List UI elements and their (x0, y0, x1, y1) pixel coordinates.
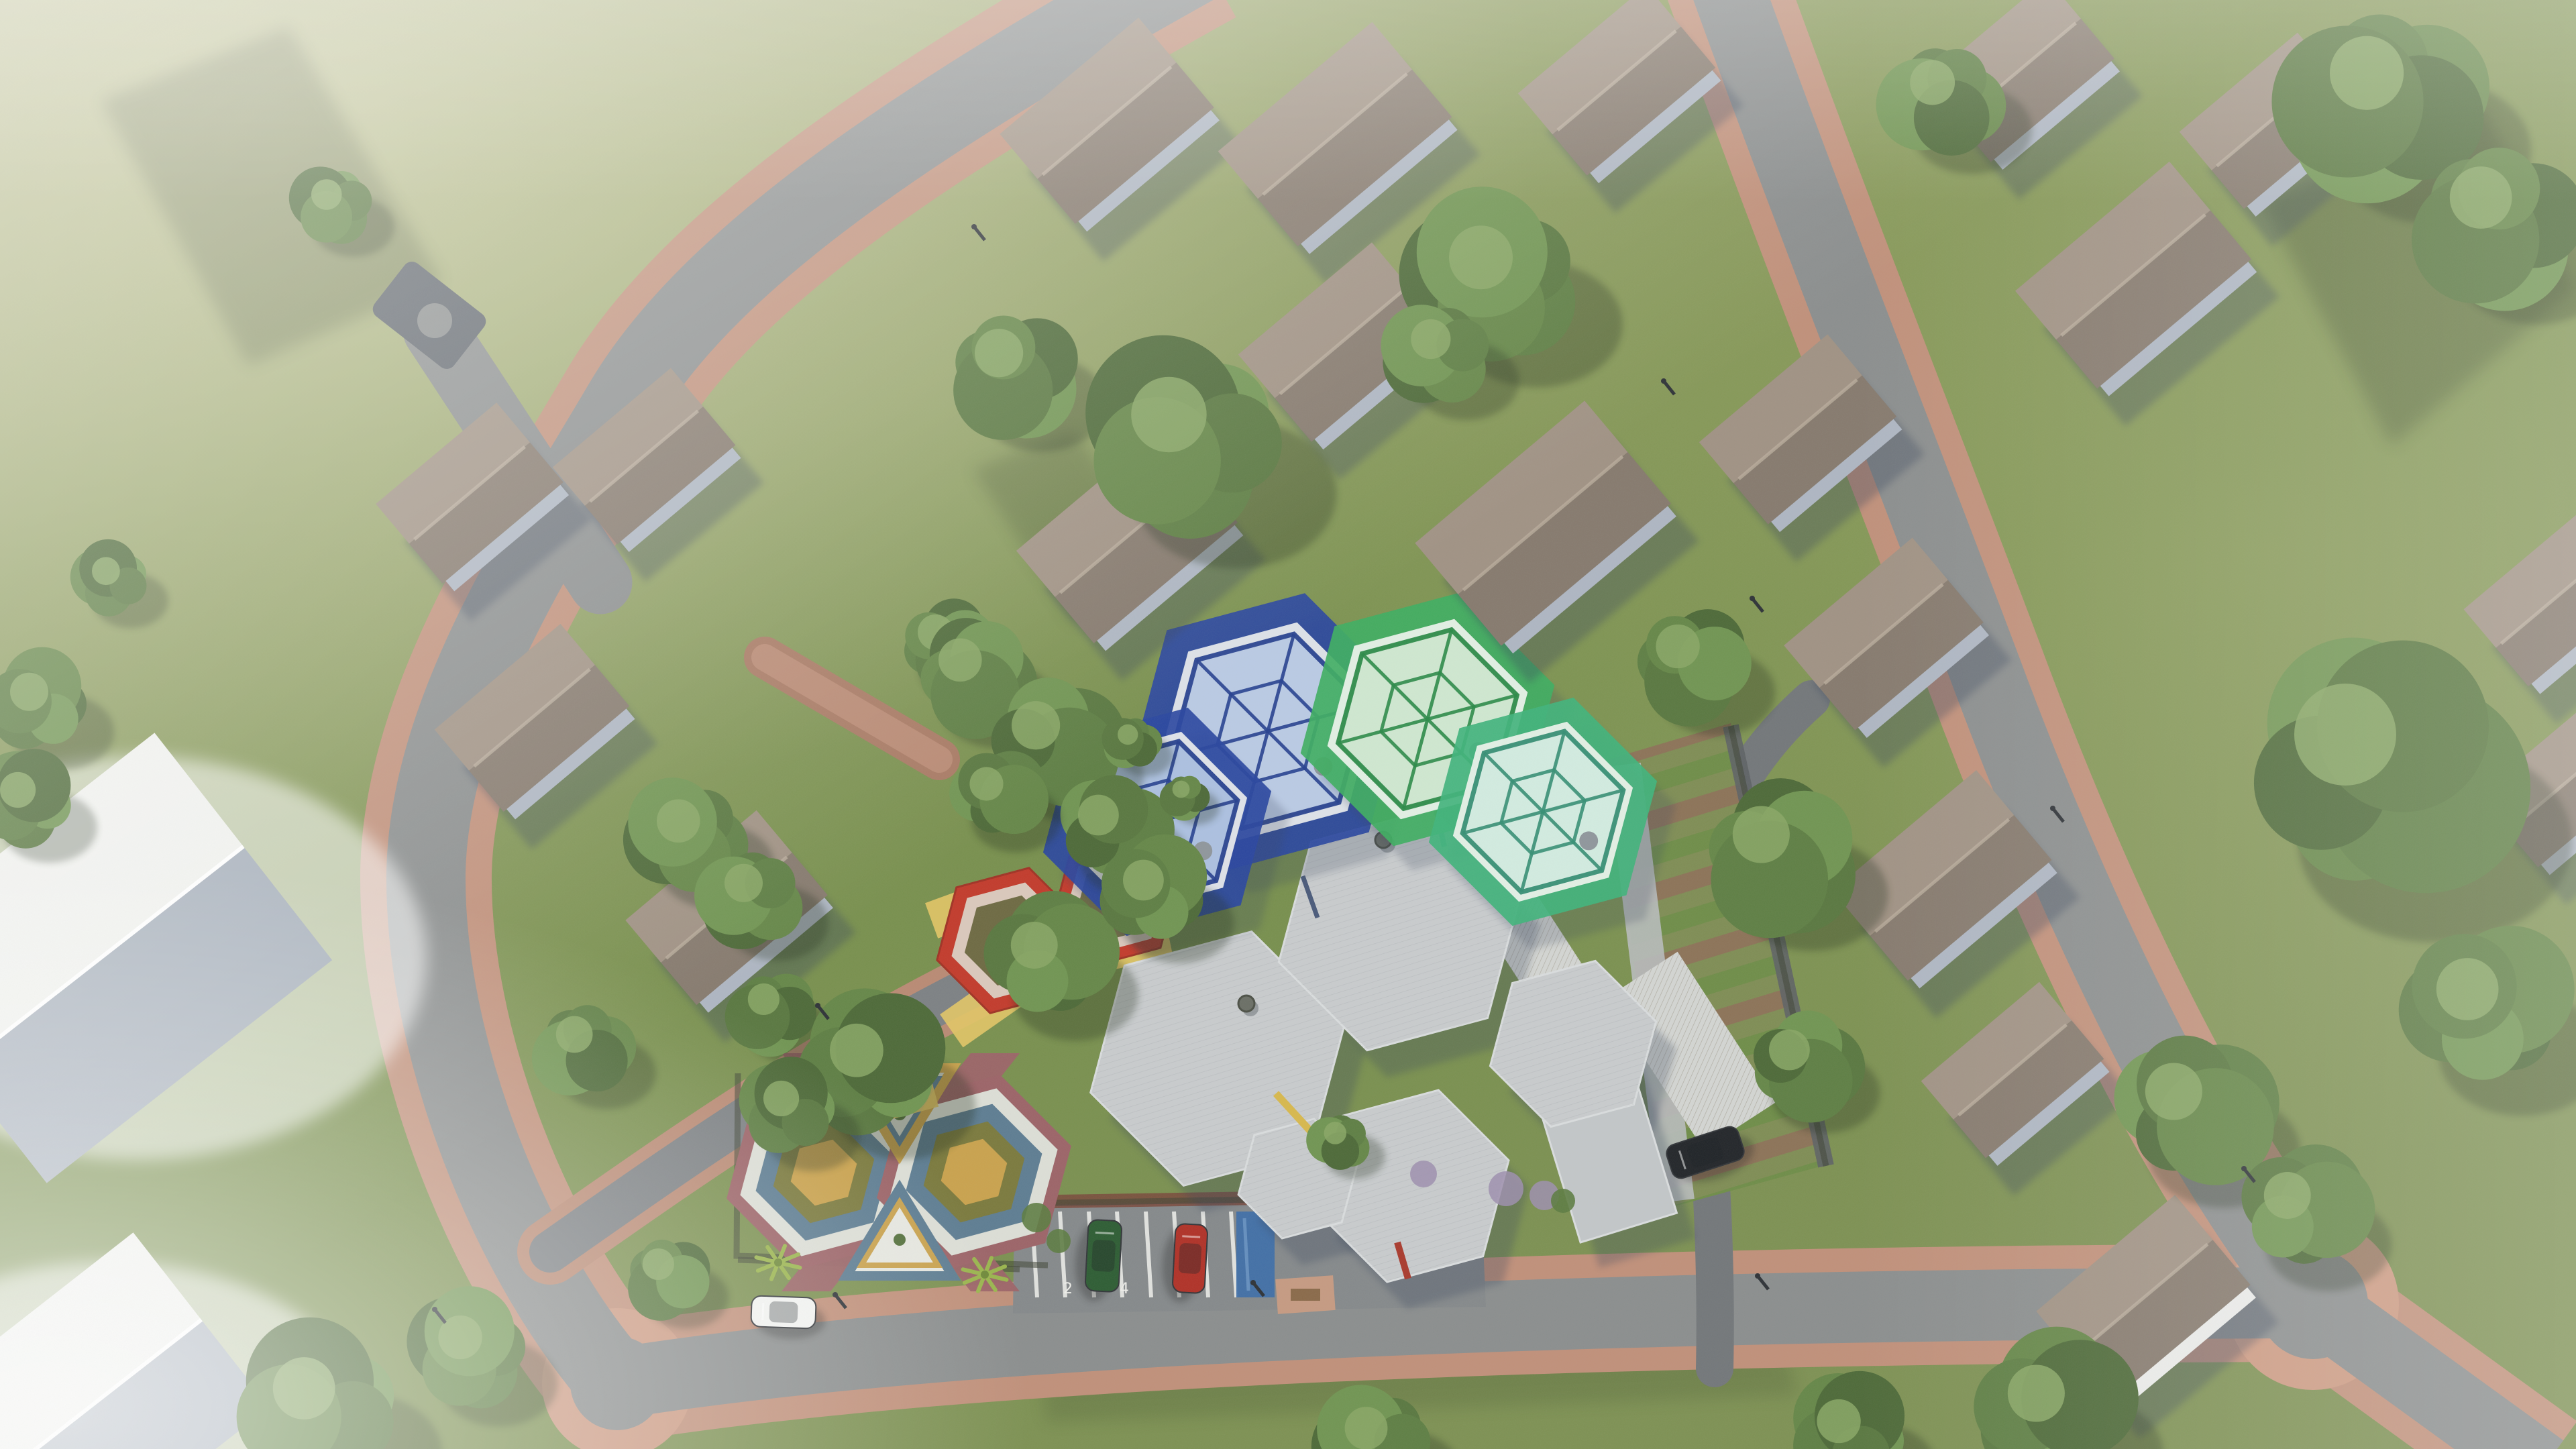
site-plan-canvas: 24 (0, 0, 2576, 1449)
aerial-site-rendering: 24 (0, 0, 2576, 1449)
film-grain (0, 0, 2576, 1449)
